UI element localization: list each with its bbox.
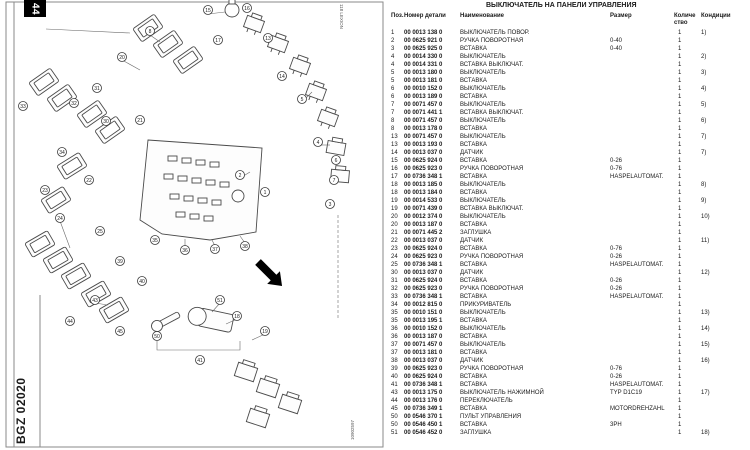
svg-text:23: 23 [42, 188, 48, 194]
cell-name: ВСТАВКА [460, 421, 487, 429]
cell-pos: 15 [391, 157, 398, 165]
cell-qty: 1 [678, 389, 681, 397]
diagram-callout: 22 [85, 176, 94, 185]
cell-qty: 1 [678, 173, 681, 181]
table-row: 40 00 0625 924 0 ВСТАВКА 0-26 1 [388, 373, 750, 381]
cell-qty: 1 [678, 357, 681, 365]
cell-name: ВСТАВКА [460, 381, 487, 389]
cell-size: 0-76 [610, 245, 622, 253]
cell-pos: 50 [391, 413, 398, 421]
diagram-callout: 5 [298, 95, 307, 104]
table-row: 7 00 0071 441 1 ВСТАВКА ВЫКЛЮЧАТ. 1 [388, 109, 750, 117]
cell-size: 0-26 [610, 373, 622, 381]
cell-name: ВЫКЛЮЧАТЕЛЬ [460, 53, 506, 61]
cell-part-number: 00 0013 138 0 [404, 29, 442, 37]
svg-text:21: 21 [137, 118, 143, 124]
cell-name: ВСТАВКА [460, 173, 487, 181]
table-row: 45 00 0736 349 1 ВСТАВКА MOTORDREHZAHL 1 [388, 405, 750, 413]
table-row: 31 00 0625 924 0 ВСТАВКА 0-26 1 [388, 277, 750, 285]
cell-qty: 1 [678, 165, 681, 173]
table-row: 3 00 0625 925 0 ВСТАВКА 0-40 1 [388, 45, 750, 53]
cell-pos: 51 [391, 429, 398, 437]
cell-part-number: 00 0010 152 0 [404, 325, 442, 333]
cell-pos: 37 [391, 341, 398, 349]
table-row: 39 00 0625 923 0 РУЧКА ПОВОРОТНАЯ 0-76 1 [388, 365, 750, 373]
table-row: 4 00 0014 331 0 ВСТАВКА ВЫКЛЮЧАТ. 1 [388, 61, 750, 69]
svg-text:1: 1 [264, 190, 267, 196]
cell-name: ВЫКЛЮЧАТЕЛЬ [460, 69, 506, 77]
cell-qty: 1 [678, 293, 681, 301]
cell-part-number: 00 0736 348 1 [404, 261, 442, 269]
cell-name: ПЕРЕКЛЮЧАТЕЛЬ [460, 397, 513, 405]
cell-pos: 21 [391, 229, 398, 237]
cell-name: ВЫКЛЮЧАТЕЛЬ [460, 325, 506, 333]
diagram-callout: 14 [278, 72, 287, 81]
cell-note: 9) [701, 197, 706, 205]
cell-pos: 34 [391, 301, 398, 309]
svg-text:16: 16 [244, 6, 250, 12]
table-title: ВЫКЛЮЧАТЕЛЬ НА ПАНЕЛИ УПРАВЛЕНИЯ [486, 2, 637, 9]
exploded-diagram: 1516817132014313233530213442262372425321… [0, 0, 385, 450]
table-row: 43 00 0013 175 0 ВЫКЛЮЧАТЕЛЬ НАЖИМНОЙ TY… [388, 389, 750, 397]
cell-name: ЗАГЛУШКА [460, 429, 491, 437]
cell-part-number: 00 0071 441 1 [404, 109, 442, 117]
col-header-part-number: Номер детали [404, 13, 446, 20]
cell-name: ВСТАВКА [460, 45, 487, 53]
cell-qty: 1 [678, 309, 681, 317]
cell-part-number: 00 0012 815 0 [404, 301, 442, 309]
cell-qty: 1 [678, 381, 681, 389]
cell-pos: 16 [391, 165, 398, 173]
cell-qty: 1 [678, 421, 681, 429]
cell-pos: 19 [391, 197, 398, 205]
cell-size: TYP D1C19 [610, 389, 642, 397]
cell-size: 0-40 [610, 45, 622, 53]
table-header: Поз. Номер детали Наименование Размер Ко… [388, 13, 750, 28]
cell-name: ВСТАВКА [460, 261, 487, 269]
catalog-page: 1516817132014313233530213442262372425321… [0, 0, 750, 450]
console-panel [140, 140, 262, 240]
cell-size: 0-26 [610, 285, 622, 293]
cell-name: ВСТАВКА [460, 189, 487, 197]
diagram-callout: 33 [19, 102, 28, 111]
direction-arrow [252, 256, 289, 293]
cell-part-number: 00 0013 175 0 [404, 389, 442, 397]
cell-name: ВЫКЛЮЧАТЕЛЬ [460, 101, 506, 109]
diagram-callout: 19 [261, 327, 270, 336]
cell-name: ВЫКЛЮЧАТЕЛЬ [460, 117, 506, 125]
diagram-callout: 8 [146, 27, 155, 36]
svg-text:7: 7 [333, 178, 336, 184]
diagram-callout: 45 [116, 327, 125, 336]
diagram-callout: 16 [243, 4, 252, 13]
cell-size: 0-40 [610, 37, 622, 45]
cell-part-number: 00 0013 037 0 [404, 357, 442, 365]
cell-note: 11) [701, 237, 709, 245]
cell-name: ВЫКЛЮЧАТЕЛЬ [460, 85, 506, 93]
ignition-switch [150, 306, 240, 350]
table-row: 37 00 0013 181 0 ВСТАВКА 1 [388, 349, 750, 357]
cell-size: 3PH [610, 421, 622, 429]
cell-qty: 1 [678, 277, 681, 285]
cell-name: ВЫКЛЮЧАТЕЛЬ [460, 197, 506, 205]
diagram-callout: 31 [93, 84, 102, 93]
cell-pos: 24 [391, 253, 398, 261]
cell-name: ВСТАВКА [460, 77, 487, 85]
cell-part-number: 00 0736 348 1 [404, 293, 442, 301]
svg-text:39: 39 [117, 259, 123, 265]
svg-text:8: 8 [149, 29, 152, 35]
cell-note: 10) [701, 213, 710, 221]
cell-qty: 1 [678, 397, 681, 405]
cell-qty: 1 [678, 245, 681, 253]
cell-note: 8) [701, 181, 706, 189]
table-row: 16 00 0625 923 0 РУЧКА ПОВОРОТНАЯ 0-76 1 [388, 165, 750, 173]
cell-pos: 31 [391, 277, 398, 285]
table-row: 44 00 0013 176 0 ПЕРЕКЛЮЧАТЕЛЬ 1 [388, 397, 750, 405]
table-row: 30 00 0013 037 0 ДАТЧИК 1 12) [388, 269, 750, 277]
cell-pos: 4 [391, 53, 394, 61]
cell-name: ПУЛЬТ УПРАВЛЕНИЯ [460, 413, 521, 421]
diagram-callout: 41 [196, 356, 205, 365]
table-row: 1 00 0013 138 0 ВЫКЛЮЧАТЕЛЬ ПОВОР. 1 1) [388, 29, 750, 37]
table-row: 33 00 0736 348 1 ВСТАВКА HASPELAUTOMAT. … [388, 293, 750, 301]
table-row: 5 00 0013 180 0 ВЫКЛЮЧАТЕЛЬ 1 3) [388, 69, 750, 77]
cell-pos: 36 [391, 325, 398, 333]
cell-part-number: 00 0013 184 0 [404, 189, 442, 197]
table-row: 41 00 0736 348 1 ВСТАВКА HASPELAUTOMAT. … [388, 381, 750, 389]
cell-name: ВСТАВКА [460, 93, 487, 101]
svg-text:18: 18 [234, 314, 240, 320]
cell-pos: 8 [391, 117, 394, 125]
cell-qty: 1 [678, 349, 681, 357]
cell-qty: 1 [678, 133, 681, 141]
diagram-callout: 36 [181, 246, 190, 255]
cell-name: ВСТАВКА ВЫКЛЮЧАТ. [460, 205, 523, 213]
table-row: 18 00 0013 184 0 ВСТАВКА 1 [388, 189, 750, 197]
diagram-callout: 50 [153, 332, 162, 341]
table-row: 35 00 0013 195 1 ВСТАВКА 1 [388, 317, 750, 325]
cell-note: 14) [701, 325, 710, 333]
svg-text:5: 5 [301, 97, 304, 103]
cell-name: ВСТАВКА [460, 245, 487, 253]
svg-text:44: 44 [67, 319, 73, 325]
cell-part-number: 00 0013 037 0 [404, 237, 442, 245]
cell-name: ВСТАВКА [460, 293, 487, 301]
cell-size: HASPELAUTOMAT. [610, 173, 663, 181]
cell-pos: 40 [391, 373, 398, 381]
cell-part-number: 00 0010 152 0 [404, 85, 442, 93]
cell-name: ДАТЧИК [460, 357, 483, 365]
table-row: 35 00 0010 151 0 ВЫКЛЮЧАТЕЛЬ 1 13) [388, 309, 750, 317]
cell-pos: 18 [391, 181, 398, 189]
cell-name: ВСТАВКА [460, 125, 487, 133]
cell-note: 15) [701, 341, 710, 349]
cell-name: РУЧКА ПОВОРОТНАЯ [460, 165, 523, 173]
cell-qty: 1 [678, 269, 681, 277]
cell-name: ВСТАВКА [460, 221, 487, 229]
cell-part-number: 00 0013 037 0 [404, 149, 442, 157]
cell-part-number: 00 0625 921 0 [404, 37, 442, 45]
cell-pos: 50 [391, 421, 398, 429]
col-header-qty-line2: ство [674, 20, 688, 27]
cell-part-number: 00 0546 450 1 [404, 421, 442, 429]
cell-name: ДАТЧИК [460, 269, 483, 277]
diagram-callout: 4 [314, 138, 323, 147]
diagram-callout: 25 [96, 227, 105, 236]
cell-size: 0-26 [610, 277, 622, 285]
cell-pos: 22 [391, 237, 398, 245]
cell-qty: 1 [678, 237, 681, 245]
svg-text:2: 2 [239, 173, 242, 179]
cell-size: HASPELAUTOMAT. [610, 293, 663, 301]
cell-part-number: 00 0014 533 0 [404, 197, 442, 205]
table-row: 34 00 0012 815 0 ПРИКУРИВАТЕЛЬ 1 [388, 301, 750, 309]
cell-qty: 1 [678, 141, 681, 149]
diagram-callout: 17 [214, 36, 223, 45]
cell-pos: 19 [391, 205, 398, 213]
cell-qty: 1 [678, 229, 681, 237]
table-row: 23 00 0625 924 0 ВСТАВКА 0-76 1 [388, 245, 750, 253]
cell-pos: 2 [391, 37, 394, 45]
col-header-name: Наименование [460, 13, 504, 20]
diagram-callout: 38 [241, 242, 250, 251]
table-row: 51 00 0546 452 0 ЗАГЛУШКА 1 18) [388, 429, 750, 437]
cell-qty: 1 [678, 413, 681, 421]
cell-qty: 1 [678, 37, 681, 45]
cell-qty: 1 [678, 149, 681, 157]
cell-name: ДАТЧИК [460, 237, 483, 245]
cell-part-number: 00 0013 178 0 [404, 125, 442, 133]
cell-part-number: 00 0012 374 0 [404, 213, 442, 221]
table-row: 8 00 0071 457 0 ВЫКЛЮЧАТЕЛЬ 1 6) [388, 117, 750, 125]
cell-qty: 1 [678, 317, 681, 325]
cell-part-number: 00 0736 349 1 [404, 405, 442, 413]
diagram-callout: 18 [233, 312, 242, 321]
cell-pos: 18 [391, 189, 398, 197]
cell-name: ВЫКЛЮЧАТЕЛЬ [460, 341, 506, 349]
diagram-page: 1516817132014313233530213442262372425321… [0, 0, 385, 450]
cell-pos: 25 [391, 261, 398, 269]
cell-qty: 1 [678, 93, 681, 101]
cell-part-number: 00 0625 923 0 [404, 285, 442, 293]
cell-qty: 1 [678, 205, 681, 213]
cell-qty: 1 [678, 197, 681, 205]
table-row: 6 00 0010 152 0 ВЫКЛЮЧАТЕЛЬ 1 4) [388, 85, 750, 93]
cell-qty: 1 [678, 125, 681, 133]
cell-pos: 13 [391, 141, 398, 149]
table-row: 17 00 0736 348 1 ВСТАВКА HASPELAUTOMAT. … [388, 173, 750, 181]
cell-qty: 1 [678, 405, 681, 413]
cell-qty: 1 [678, 301, 681, 309]
cell-part-number: 00 0013 181 0 [404, 77, 442, 85]
table-row: 36 00 0010 152 0 ВЫКЛЮЧАТЕЛЬ 1 14) [388, 325, 750, 333]
diagram-callout: 34 [58, 148, 67, 157]
cell-qty: 1 [678, 53, 681, 61]
cell-name: ВСТАВКА [460, 277, 487, 285]
cell-name: ВСТАВКА [460, 373, 487, 381]
diagram-callout: 1 [261, 188, 270, 197]
cell-part-number: 00 0625 923 0 [404, 253, 442, 261]
svg-text:3: 3 [329, 202, 332, 208]
svg-text:4: 4 [317, 140, 320, 146]
cell-pos: 35 [391, 317, 398, 325]
cell-pos: 5 [391, 69, 394, 77]
svg-text:17: 17 [215, 38, 221, 44]
table-row: 20 00 0012 374 0 ВЫКЛЮЧАТЕЛЬ 1 10) [388, 213, 750, 221]
cell-qty: 1 [678, 213, 681, 221]
cell-part-number: 00 0625 923 0 [404, 165, 442, 173]
cell-qty: 1 [678, 77, 681, 85]
diagram-callout: 35 [151, 236, 160, 245]
cell-name: ВЫКЛЮЧАТЕЛЬ ПОВОР. [460, 29, 529, 37]
table-row: 13 00 0071 457 0 ВЫКЛЮЧАТЕЛЬ 1 7) [388, 133, 750, 141]
rocker-switch-group [234, 358, 303, 427]
svg-text:35: 35 [152, 238, 158, 244]
svg-text:37: 37 [212, 247, 218, 253]
table-row: 18 00 0013 185 0 ВЫКЛЮЧАТЕЛЬ 1 8) [388, 181, 750, 189]
diagram-callout: 37 [211, 245, 220, 254]
cell-pos: 45 [391, 405, 398, 413]
table-row: 8 00 0013 178 0 ВСТАВКА 1 [388, 125, 750, 133]
cell-qty: 1 [678, 285, 681, 293]
svg-text:36: 36 [182, 248, 188, 254]
catalog-code: BGZ 02020 [14, 377, 28, 444]
cell-qty: 1 [678, 45, 681, 53]
col-header-pos: Поз. [391, 13, 404, 20]
cell-pos: 8 [391, 125, 394, 133]
cell-name: РУЧКА ПОВОРОТНАЯ [460, 253, 523, 261]
cell-size: 0-26 [610, 157, 622, 165]
diagram-callout: 39 [116, 257, 125, 266]
cell-qty: 1 [678, 69, 681, 77]
col-header-size: Размер [610, 13, 632, 20]
cell-pos: 7 [391, 109, 394, 117]
cell-qty: 1 [678, 261, 681, 269]
table-row: 4 00 0014 330 0 ВЫКЛЮЧАТЕЛЬ 1 2) [388, 53, 750, 61]
cell-pos: 17 [391, 173, 398, 181]
keycap-cluster-top [133, 14, 203, 74]
cell-qty: 1 [678, 333, 681, 341]
cell-part-number: 00 0071 439 0 [404, 205, 442, 213]
table-row: 20 00 0013 187 0 ВСТАВКА 1 [388, 221, 750, 229]
cell-size: 0-76 [610, 365, 622, 373]
diagram-callout: 32 [70, 99, 79, 108]
cell-part-number: 00 0013 176 0 [404, 397, 442, 405]
diagram-callout: 6 [332, 156, 341, 165]
cell-part-number: 00 0013 195 1 [404, 317, 442, 325]
cell-part-number: 00 0625 924 0 [404, 277, 442, 285]
cell-qty: 1 [678, 429, 681, 437]
cell-name: ВЫКЛЮЧАТЕЛЬ [460, 309, 506, 317]
table-row: 5 00 0013 181 0 ВСТАВКА 1 [388, 77, 750, 85]
table-row: 50 00 0546 370 1 ПУЛЬТ УПРАВЛЕНИЯ 1 [388, 413, 750, 421]
table-row: 15 00 0625 924 0 ВСТАВКА 0-26 1 [388, 157, 750, 165]
cell-part-number: 00 0010 151 0 [404, 309, 442, 317]
cell-pos: 23 [391, 245, 398, 253]
cell-name: ВЫКЛЮЧАТЕЛЬ [460, 181, 506, 189]
table-row: 50 00 0546 450 1 ВСТАВКА 3PH 1 [388, 421, 750, 429]
svg-text:41: 41 [197, 358, 203, 364]
cell-name: ВСТАВКА [460, 349, 487, 357]
cell-name: РУЧКА ПОВОРОТНАЯ [460, 37, 523, 45]
svg-text:45: 45 [117, 329, 123, 335]
svg-text:43: 43 [92, 298, 98, 304]
cell-pos: 32 [391, 285, 398, 293]
cell-qty: 1 [678, 109, 681, 117]
cell-part-number: 00 0736 348 1 [404, 173, 442, 181]
svg-text:25: 25 [97, 229, 103, 235]
cell-qty: 1 [678, 117, 681, 125]
diagram-callout: 24 [56, 214, 65, 223]
cell-part-number: 00 0013 187 0 [404, 221, 442, 229]
diagram-callout: 51 [216, 296, 225, 305]
table-row: 32 00 0625 923 0 РУЧКА ПОВОРОТНАЯ 0-26 1 [388, 285, 750, 293]
table-row: 19 00 0071 439 0 ВСТАВКА ВЫКЛЮЧАТ. 1 [388, 205, 750, 213]
cell-note: 4) [701, 85, 706, 93]
diagram-callout: 13 [264, 34, 273, 43]
svg-text:51: 51 [217, 298, 223, 304]
cell-part-number: 00 0071 445 2 [404, 229, 442, 237]
cell-size: 0-26 [610, 253, 622, 261]
cell-name: ВСТАВКА ВЫКЛЮЧАТ. [460, 61, 523, 69]
diagram-callout: 40 [138, 277, 147, 286]
svg-text:13: 13 [265, 36, 271, 42]
cell-qty: 1 [678, 85, 681, 93]
cell-note: 18) [701, 429, 710, 437]
cell-qty: 1 [678, 253, 681, 261]
svg-text:6: 6 [335, 158, 338, 164]
svg-text:14: 14 [279, 74, 285, 80]
cell-pos: 6 [391, 93, 394, 101]
cell-note: 7) [701, 149, 706, 157]
cell-note: 16) [701, 357, 710, 365]
diagram-callout: 2 [236, 171, 245, 180]
diagram-callout: 23 [41, 186, 50, 195]
col-header-qty-line1: Количе [674, 13, 696, 20]
cell-name: ВЫКЛЮЧАТЕЛЬ [460, 133, 506, 141]
parts-rows: 1 00 0013 138 0 ВЫКЛЮЧАТЕЛЬ ПОВОР. 1 1) … [388, 29, 750, 437]
cell-pos: 6 [391, 85, 394, 93]
table-row: 14 00 0013 037 0 ДАТЧИК 1 7) [388, 149, 750, 157]
parts-table-page: ВЫКЛЮЧАТЕЛЬ НА ПАНЕЛИ УПРАВЛЕНИЯ Поз. Но… [388, 0, 750, 450]
cell-pos: 44 [391, 397, 398, 405]
diagram-callout: 30 [102, 117, 111, 126]
svg-text:33: 33 [20, 104, 26, 110]
cell-qty: 1 [678, 29, 681, 37]
cell-part-number: 00 0013 187 0 [404, 333, 442, 341]
svg-text:38: 38 [242, 244, 248, 250]
cell-pos: 5 [391, 77, 394, 85]
table-row: 7 00 0071 457 0 ВЫКЛЮЧАТЕЛЬ 1 5) [388, 101, 750, 109]
cell-qty: 1 [678, 221, 681, 229]
cell-part-number: 00 0013 193 0 [404, 141, 442, 149]
cell-pos: 39 [391, 365, 398, 373]
cell-pos: 36 [391, 333, 398, 341]
table-row: 37 00 0071 457 0 ВЫКЛЮЧАТЕЛЬ 1 15) [388, 341, 750, 349]
cell-note: 2) [701, 53, 706, 61]
table-row: 19 00 0014 533 0 ВЫКЛЮЧАТЕЛЬ 1 9) [388, 197, 750, 205]
cell-pos: 41 [391, 381, 398, 389]
cell-pos: 20 [391, 213, 398, 221]
table-row: 21 00 0071 445 2 ЗАГЛУШКА 1 [388, 229, 750, 237]
diagram-callout: 21 [136, 116, 145, 125]
diagram-callout: 3 [326, 200, 335, 209]
svg-text:31: 31 [94, 86, 100, 92]
cell-note: 1) [701, 29, 706, 37]
cell-pos: 30 [391, 269, 398, 277]
svg-text:40: 40 [139, 279, 145, 285]
